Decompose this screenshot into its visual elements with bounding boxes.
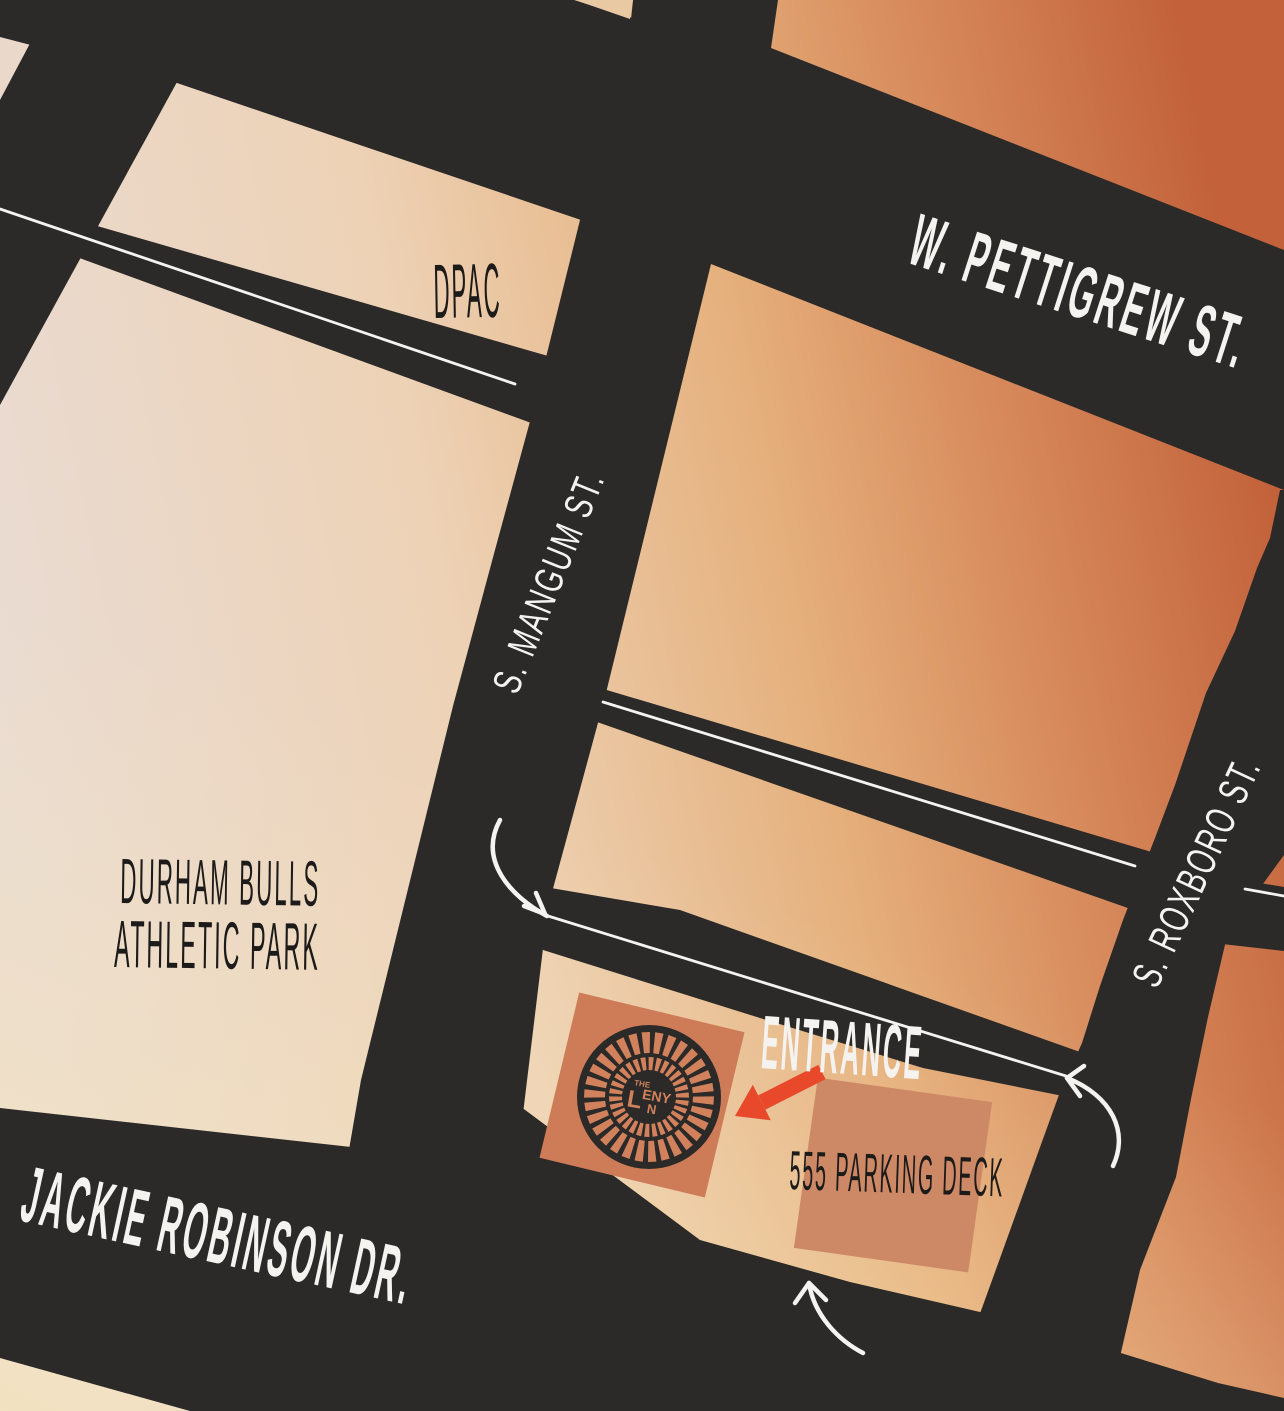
svg-text:DPAC: DPAC [433, 249, 503, 336]
svg-text:555 PARKING DECK: 555 PARKING DECK [789, 1140, 1006, 1209]
svg-text:ENTRANCE: ENTRANCE [759, 1001, 927, 1096]
svg-text:ATHLETIC PARK: ATHLETIC PARK [114, 907, 321, 985]
